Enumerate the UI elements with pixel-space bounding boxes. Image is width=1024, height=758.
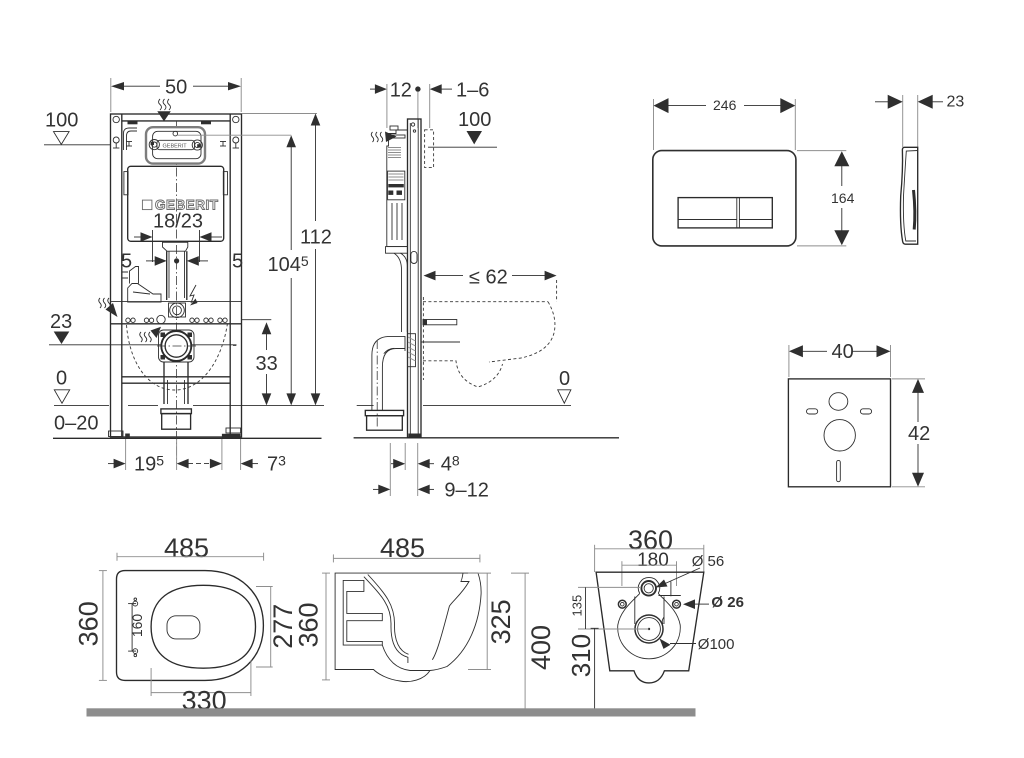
svg-text:0–20: 0–20	[54, 413, 99, 435]
svg-text:23: 23	[50, 311, 72, 333]
svg-text:GEBERIT: GEBERIT	[163, 143, 188, 149]
svg-text:5: 5	[232, 251, 243, 273]
svg-text:50: 50	[165, 77, 187, 99]
svg-text:360: 360	[74, 601, 104, 646]
svg-text:0: 0	[56, 368, 67, 390]
svg-text:Ø 26: Ø 26	[711, 594, 744, 611]
svg-text:12: 12	[390, 80, 412, 102]
svg-text:5: 5	[121, 251, 132, 273]
svg-text:100: 100	[45, 110, 78, 132]
svg-text:33: 33	[256, 353, 278, 375]
svg-text:0: 0	[559, 368, 570, 390]
svg-text:246: 246	[713, 97, 737, 113]
svg-text:400: 400	[526, 625, 556, 670]
svg-text:164: 164	[831, 190, 855, 206]
svg-text:180: 180	[637, 550, 669, 571]
svg-text:310: 310	[566, 634, 596, 677]
svg-text:≤ 62: ≤ 62	[469, 266, 508, 288]
svg-text:160: 160	[129, 614, 145, 638]
svg-text:1–6: 1–6	[456, 80, 489, 102]
svg-text:40: 40	[832, 341, 854, 363]
svg-text:360: 360	[293, 602, 323, 647]
svg-text:112: 112	[300, 227, 332, 249]
svg-text:Ø 56: Ø 56	[692, 553, 725, 570]
svg-text:9–12: 9–12	[444, 479, 489, 501]
svg-text:325: 325	[486, 599, 516, 644]
svg-text:135: 135	[570, 595, 585, 617]
svg-text:23: 23	[947, 94, 965, 111]
svg-text:100: 100	[458, 109, 491, 131]
svg-text:Ø100: Ø100	[698, 636, 735, 653]
svg-text:485: 485	[164, 533, 209, 563]
svg-text:18/23: 18/23	[153, 210, 203, 232]
svg-text:42: 42	[908, 423, 930, 445]
